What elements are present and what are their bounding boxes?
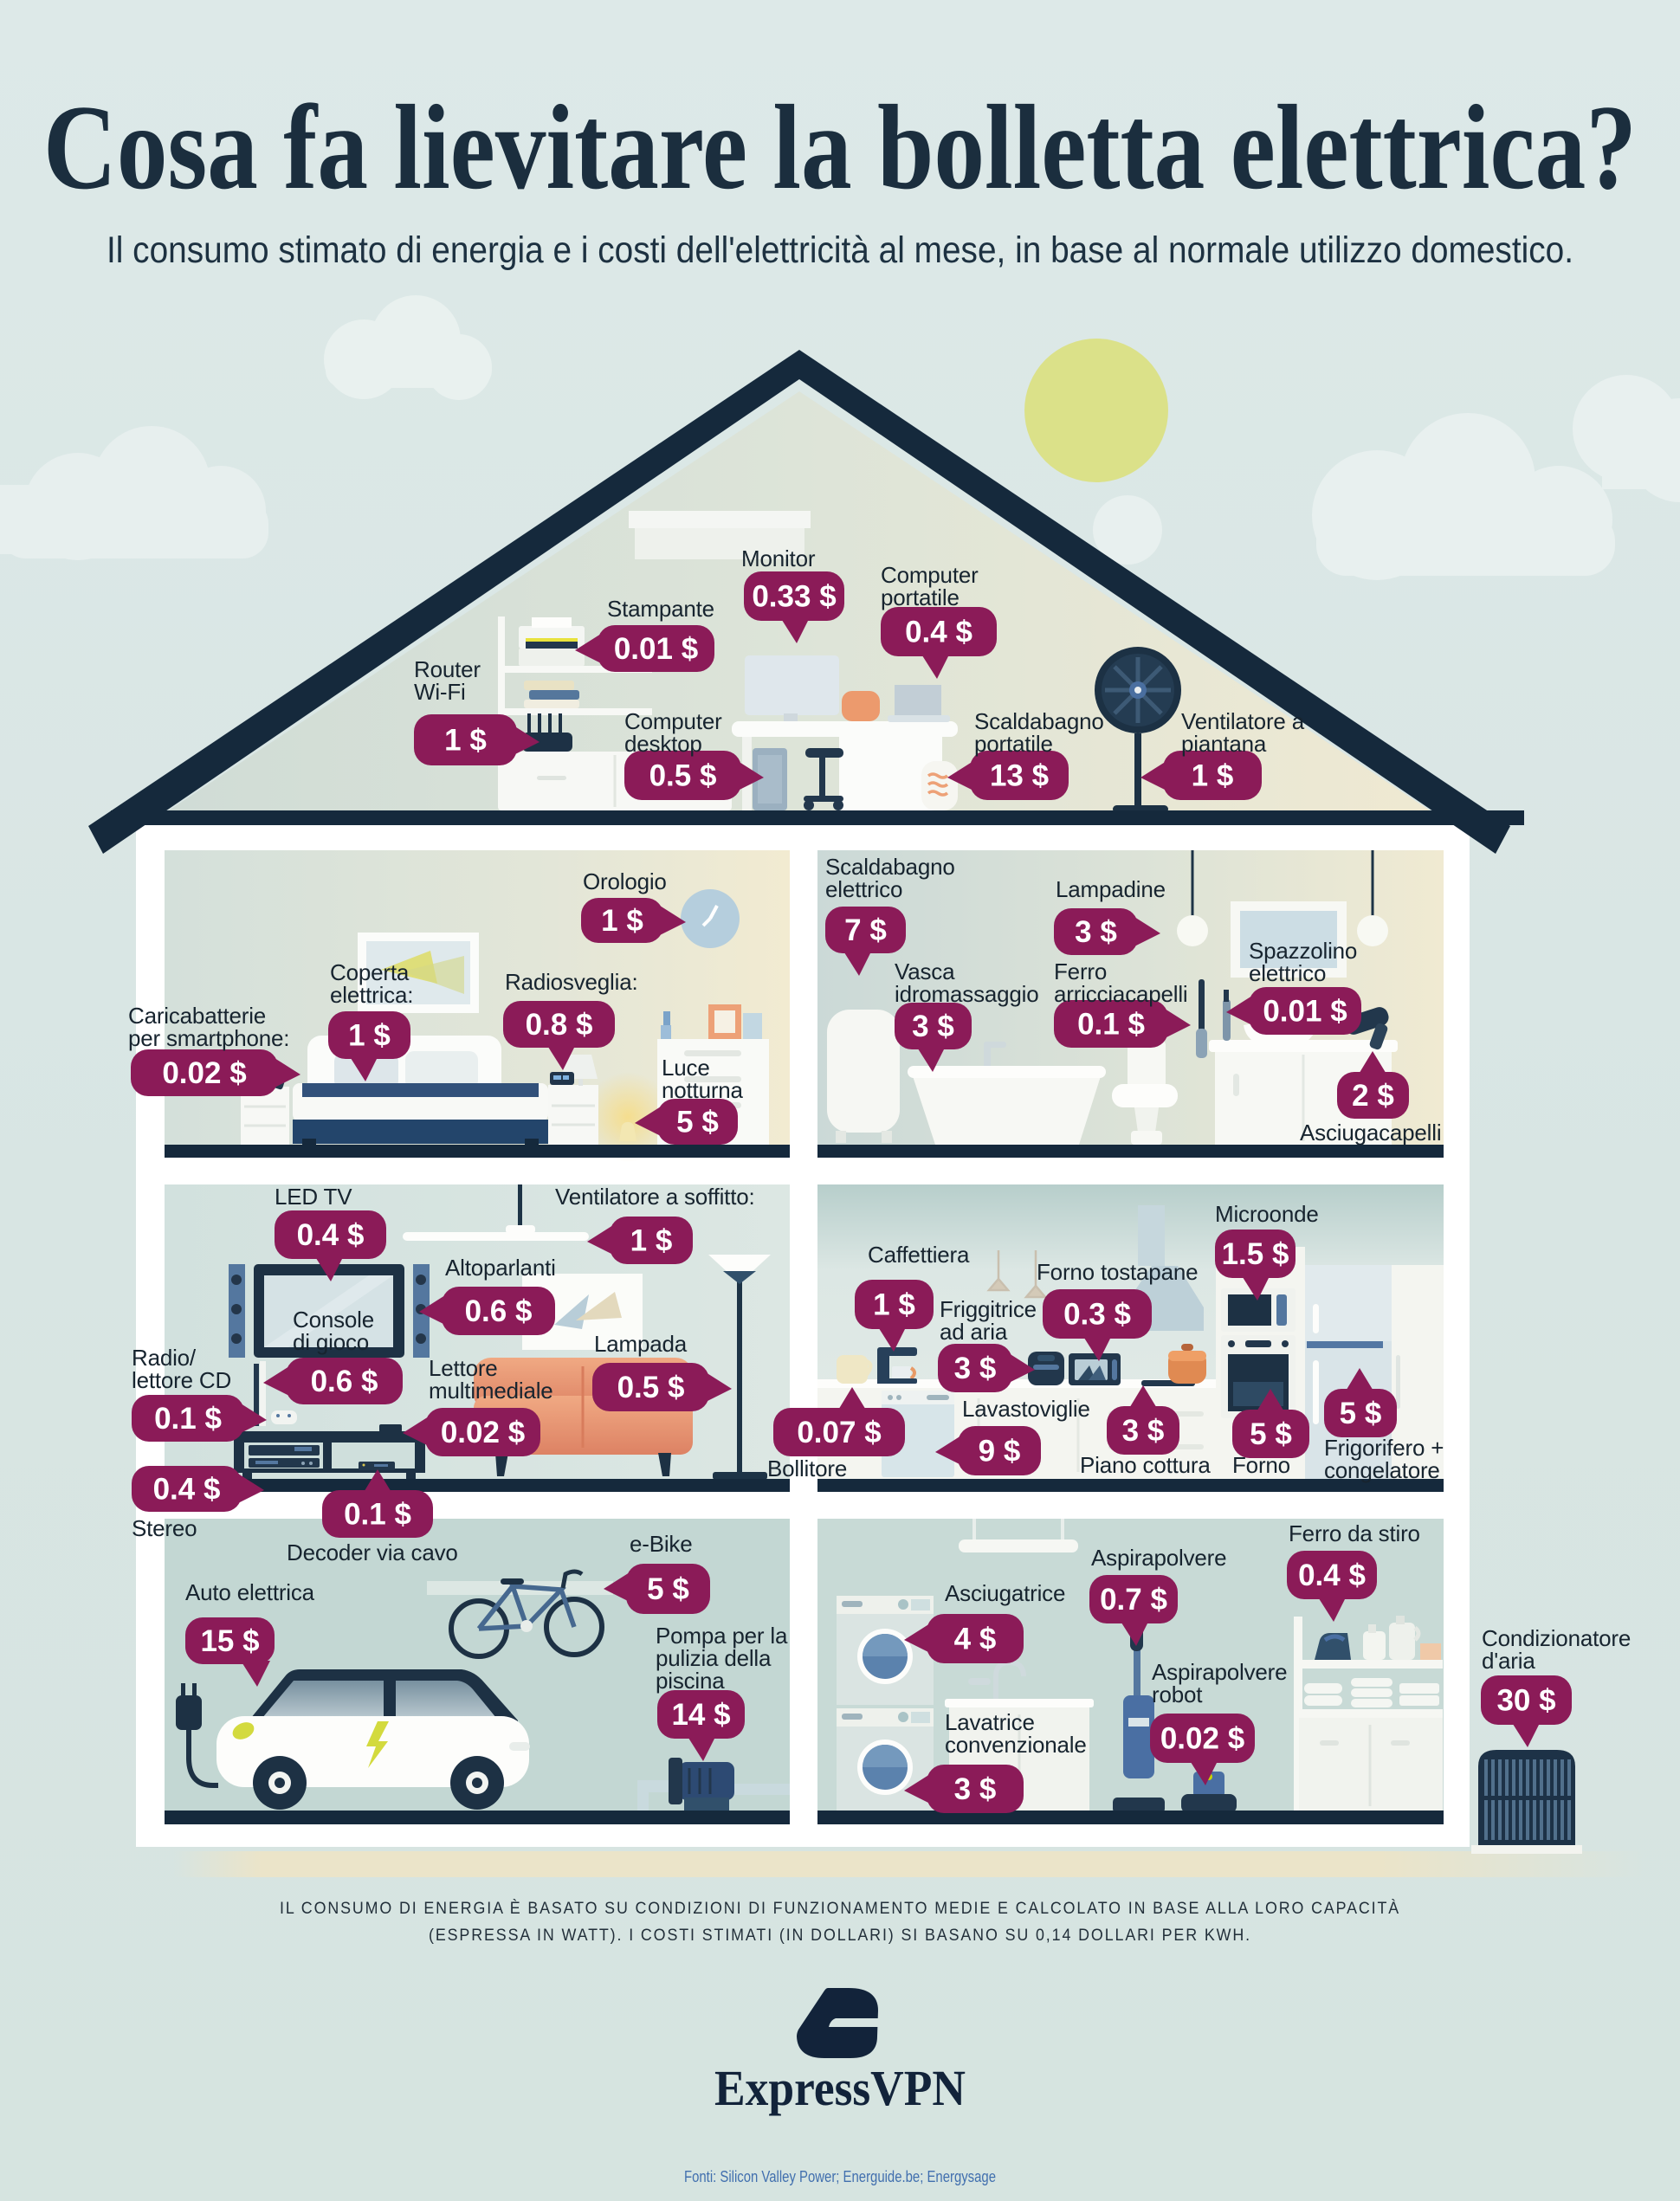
svg-text:Orologio: Orologio: [583, 868, 667, 894]
svg-text:13 $: 13 $: [990, 759, 1049, 793]
svg-text:Consoledi gioco: Consoledi gioco: [293, 1307, 374, 1355]
svg-text:0.02 $: 0.02 $: [441, 1416, 525, 1449]
svg-text:1 $: 1 $: [873, 1288, 915, 1322]
svg-text:LED TV: LED TV: [275, 1184, 352, 1210]
svg-text:Fonti: Silicon Valley Power; E: Fonti: Silicon Valley Power; Energuide.b…: [684, 2168, 996, 2185]
svg-text:Lampada: Lampada: [594, 1331, 688, 1357]
svg-text:3 $: 3 $: [954, 1352, 997, 1385]
svg-text:30 $: 30 $: [1496, 1684, 1555, 1718]
svg-text:5 $: 5 $: [1340, 1397, 1382, 1430]
svg-text:0.6 $: 0.6 $: [465, 1294, 533, 1328]
svg-text:5 $: 5 $: [1250, 1417, 1292, 1451]
svg-text:Altoparlanti: Altoparlanti: [445, 1255, 556, 1281]
svg-text:14 $: 14 $: [671, 1698, 730, 1732]
svg-text:0.1 $: 0.1 $: [154, 1402, 222, 1436]
svg-text:1 $: 1 $: [444, 724, 487, 758]
svg-text:0.33 $: 0.33 $: [752, 580, 836, 614]
svg-text:0.8 $: 0.8 $: [526, 1008, 593, 1042]
svg-text:Decoder via cavo: Decoder via cavo: [287, 1539, 458, 1565]
svg-text:3 $: 3 $: [912, 1010, 954, 1043]
svg-text:Asciugatrice: Asciugatrice: [945, 1580, 1065, 1606]
svg-text:3 $: 3 $: [954, 1772, 997, 1806]
svg-text:9 $: 9 $: [979, 1435, 1021, 1468]
svg-text:0.5 $: 0.5 $: [617, 1371, 685, 1404]
svg-text:0.01 $: 0.01 $: [614, 632, 698, 666]
svg-text:Stereo: Stereo: [132, 1515, 197, 1541]
svg-text:Frigorifero +congelatore: Frigorifero +congelatore: [1324, 1435, 1444, 1483]
svg-text:Caricabatterieper smartphone:: Caricabatterieper smartphone:: [128, 1003, 289, 1051]
svg-text:Microonde: Microonde: [1215, 1201, 1319, 1227]
svg-text:0.02 $: 0.02 $: [162, 1056, 246, 1090]
svg-text:0.4 $: 0.4 $: [1298, 1559, 1366, 1592]
svg-text:Caffettiera: Caffettiera: [868, 1242, 970, 1268]
svg-text:0.3 $: 0.3 $: [1063, 1298, 1131, 1332]
svg-text:1 $: 1 $: [601, 904, 643, 938]
svg-text:0.02 $: 0.02 $: [1160, 1722, 1244, 1756]
svg-text:Asciugacapelli: Asciugacapelli: [1300, 1120, 1441, 1146]
svg-text:1.5 $: 1.5 $: [1222, 1237, 1289, 1271]
svg-text:Auto elettrica: Auto elettrica: [185, 1579, 315, 1605]
svg-text:Radiosveglia:: Radiosveglia:: [505, 969, 638, 995]
svg-text:Forno: Forno: [1232, 1452, 1290, 1478]
svg-text:ExpressVPN: ExpressVPN: [714, 2060, 966, 2116]
svg-text:5 $: 5 $: [676, 1106, 719, 1139]
svg-text:5 $: 5 $: [647, 1572, 689, 1606]
svg-text:Forno tostapane: Forno tostapane: [1037, 1259, 1198, 1285]
svg-text:Stampante: Stampante: [607, 596, 714, 622]
svg-text:2 $: 2 $: [1352, 1079, 1394, 1113]
svg-text:0.1 $: 0.1 $: [344, 1498, 411, 1532]
svg-text:Piano cottura: Piano cottura: [1080, 1452, 1211, 1478]
svg-text:Lavastoviglie: Lavastoviglie: [962, 1396, 1090, 1422]
svg-text:1 $: 1 $: [1192, 759, 1234, 793]
svg-text:0.1 $: 0.1 $: [1077, 1008, 1145, 1042]
svg-text:Bollitore: Bollitore: [767, 1455, 847, 1481]
svg-text:0.4 $: 0.4 $: [905, 616, 972, 649]
svg-text:0.01 $: 0.01 $: [1263, 995, 1347, 1029]
svg-text:4 $: 4 $: [954, 1623, 997, 1656]
svg-text:0.6 $: 0.6 $: [311, 1365, 378, 1398]
svg-text:0.07 $: 0.07 $: [797, 1416, 881, 1449]
svg-text:3 $: 3 $: [1122, 1414, 1165, 1448]
svg-text:1 $: 1 $: [630, 1224, 673, 1258]
svg-text:Il consumo stimato di energia: Il consumo stimato di energia e i costi …: [107, 229, 1573, 271]
svg-text:15 $: 15 $: [200, 1624, 259, 1658]
svg-text:Cosa fa lievitare la bolletta: Cosa fa lievitare la bolletta elettrica?: [43, 81, 1637, 215]
svg-text:3 $: 3 $: [1075, 915, 1117, 949]
svg-text:Lampadine: Lampadine: [1056, 876, 1166, 902]
svg-text:(ESPRESSA IN WATT). I COSTI ST: (ESPRESSA IN WATT). I COSTI STIMATI (IN …: [429, 1927, 1251, 1945]
svg-text:0.5 $: 0.5 $: [649, 759, 717, 793]
svg-text:IL CONSUMO DI ENERGIA È BASATO: IL CONSUMO DI ENERGIA È BASATO SU CONDIZ…: [280, 1900, 1400, 1918]
svg-text:1 $: 1 $: [348, 1019, 391, 1053]
svg-text:7 $: 7 $: [844, 913, 887, 947]
svg-text:0.4 $: 0.4 $: [297, 1218, 365, 1252]
svg-text:0.7 $: 0.7 $: [1100, 1583, 1167, 1617]
svg-text:Ferro da stiro: Ferro da stiro: [1289, 1520, 1420, 1546]
svg-text:Aspirapolvere: Aspirapolvere: [1091, 1545, 1226, 1571]
svg-text:0.4 $: 0.4 $: [153, 1473, 221, 1507]
svg-text:Copertaelettrica:: Copertaelettrica:: [330, 959, 413, 1008]
svg-text:e-Bike: e-Bike: [630, 1531, 693, 1557]
svg-text:Monitor: Monitor: [741, 545, 816, 571]
svg-text:Ventilatore a soffitto:: Ventilatore a soffitto:: [555, 1184, 755, 1210]
